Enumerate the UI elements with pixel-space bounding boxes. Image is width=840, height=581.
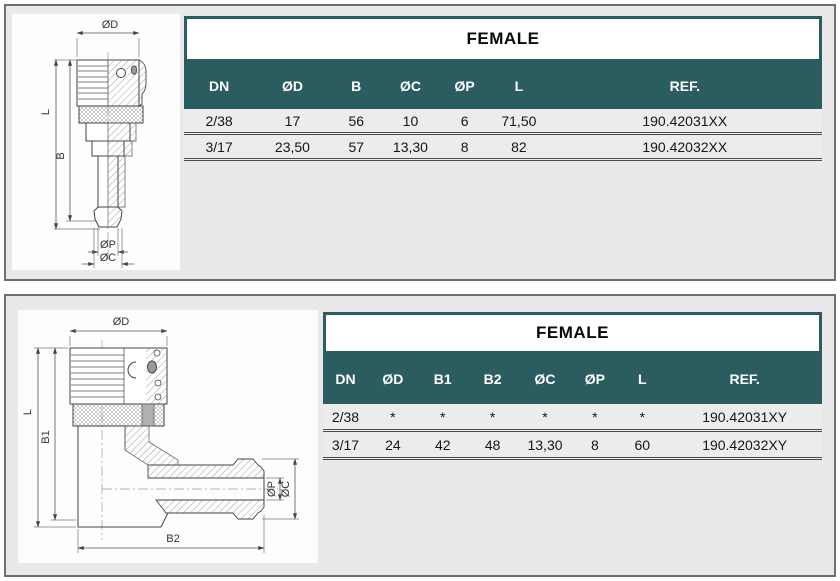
table-cell: 82	[490, 134, 547, 160]
dim-label-b2: B2	[166, 533, 179, 545]
drawing-straight-coupling: ØD L B	[12, 14, 180, 270]
tail-bottom-wall	[156, 500, 264, 519]
table-cell: 24	[368, 431, 418, 459]
spec-table: DN ØD B ØC ØP L REF. 2/38 17 56 10 6 71,…	[184, 62, 822, 161]
panel-elbow-coupling: ØD L B1	[4, 294, 836, 577]
table-cell: *	[518, 404, 573, 431]
table-cell: *	[572, 404, 617, 431]
header-row: DN ØD B ØC ØP L REF.	[184, 62, 822, 109]
col-header-d: ØD	[368, 354, 418, 404]
lock-ball	[148, 361, 157, 373]
table-cell: 8	[572, 431, 617, 459]
dim-label-l: L	[22, 409, 34, 415]
table-cell: 42	[418, 431, 468, 459]
col-header-dn: DN	[184, 62, 254, 109]
col-header-p: ØP	[439, 62, 490, 109]
straight-coupling-svg: ØD L B	[12, 14, 180, 270]
col-header-b1: B1	[418, 354, 468, 404]
table-cell: 17	[254, 109, 331, 134]
table-cell: 23,50	[254, 134, 331, 160]
col-header-l: L	[617, 354, 667, 404]
dim-label-d: ØD	[113, 316, 130, 328]
spec-table-straight: FEMALE DN ØD B ØC ØP L REF. 2/38	[184, 16, 822, 161]
col-header-b2: B2	[468, 354, 518, 404]
table-cell: 190.42031XX	[548, 109, 822, 134]
table-title: FEMALE	[184, 16, 822, 62]
table-cell: 190.42031XY	[667, 404, 822, 431]
table-row: 2/38 * * * * * * 190.42031XY	[323, 404, 822, 431]
coupling-body	[70, 348, 264, 527]
col-header-ref: REF.	[548, 62, 822, 109]
table-cell: 57	[331, 134, 382, 160]
table-cell: 190.42032XX	[548, 134, 822, 160]
table-cell: 6	[439, 109, 490, 134]
table-cell: 48	[468, 431, 518, 459]
table-cell: 2/38	[323, 404, 368, 431]
elbow-coupling-svg: ØD L B1	[18, 310, 318, 563]
table-cell: 2/38	[184, 109, 254, 134]
col-header-d: ØD	[254, 62, 331, 109]
lock-ball	[131, 66, 137, 74]
col-header-ref: REF.	[667, 354, 822, 404]
table-cell: 3/17	[323, 431, 368, 459]
col-header-dn: DN	[323, 354, 368, 404]
lock-ball-hole	[117, 69, 126, 78]
table-cell: 8	[439, 134, 490, 160]
table-row: 2/38 17 56 10 6 71,50 190.42031XX	[184, 109, 822, 134]
catalog-page: { "colors": { "teal_header": "#2b5c60", …	[0, 0, 840, 581]
dim-label-b1: B1	[40, 430, 52, 443]
table-cell: 56	[331, 109, 382, 134]
table-row: 3/17 23,50 57 13,30 8 82 190.42032XX	[184, 134, 822, 160]
col-header-l: L	[490, 62, 547, 109]
knurled-ring	[79, 106, 143, 123]
seal-ring	[142, 404, 154, 426]
table-cell: 13,30	[382, 134, 439, 160]
header-row: DN ØD B1 B2 ØC ØP L REF.	[323, 354, 822, 404]
drawing-elbow-coupling: ØD L B1	[18, 310, 318, 563]
col-header-c: ØC	[382, 62, 439, 109]
dim-label-c: ØC	[100, 252, 117, 264]
table-cell: *	[368, 404, 418, 431]
section-profile	[139, 60, 146, 106]
table-cell: 3/17	[184, 134, 254, 160]
table-cell: *	[617, 404, 667, 431]
dim-label-c: ØC	[280, 481, 292, 498]
table-cell: 13,30	[518, 431, 573, 459]
table-cell: *	[418, 404, 468, 431]
table-cell: 10	[382, 109, 439, 134]
table-title: FEMALE	[323, 312, 822, 354]
dim-label-l: L	[40, 109, 52, 115]
col-header-c: ØC	[518, 354, 573, 404]
spec-table: DN ØD B1 B2 ØC ØP L REF. 2/38 * * * *	[323, 354, 822, 460]
col-header-b: B	[331, 62, 382, 109]
col-header-p: ØP	[572, 354, 617, 404]
dim-label-p: ØP	[100, 239, 116, 251]
dim-label-b: B	[55, 152, 67, 159]
dimension-d: ØD	[70, 316, 167, 346]
elbow-corner-section	[125, 426, 178, 465]
spec-table-elbow: FEMALE DN ØD B1 B2 ØC ØP L REF.	[323, 312, 822, 460]
dimension-d: ØD	[77, 19, 139, 57]
table-cell: *	[468, 404, 518, 431]
table-cell: 190.42032XY	[667, 431, 822, 459]
table-cell: 71,50	[490, 109, 547, 134]
dimension-b2: B2	[78, 515, 264, 553]
coupling-body	[77, 60, 146, 227]
table-row: 3/17 24 42 48 13,30 8 60 190.42032XY	[323, 431, 822, 459]
dim-label-d: ØD	[102, 19, 119, 31]
table-cell: 60	[617, 431, 667, 459]
panel-straight-coupling: ØD L B	[4, 4, 836, 281]
dim-label-p: ØP	[266, 481, 278, 497]
